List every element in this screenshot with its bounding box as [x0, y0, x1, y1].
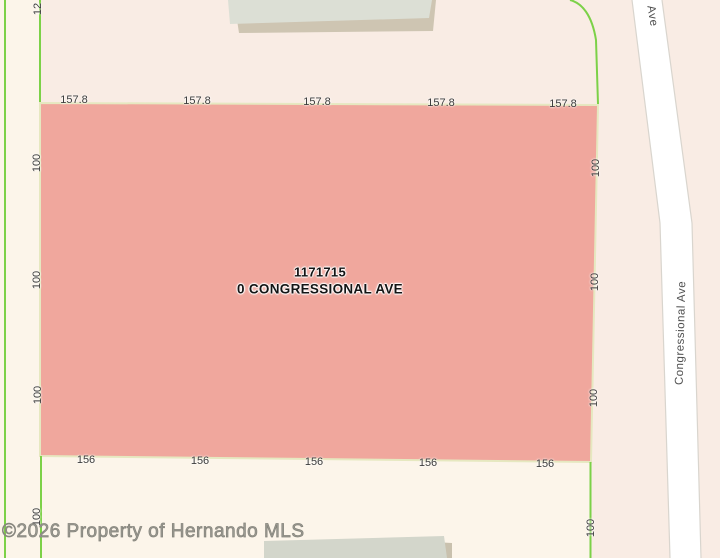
map-layers — [0, 0, 720, 558]
parcel-polygon[interactable] — [40, 103, 598, 462]
parcel-map[interactable]: 12 157.8 157.8 157.8 157.8 157.8 156 156… — [0, 0, 720, 558]
boundary-curve-northeast — [570, 0, 598, 104]
